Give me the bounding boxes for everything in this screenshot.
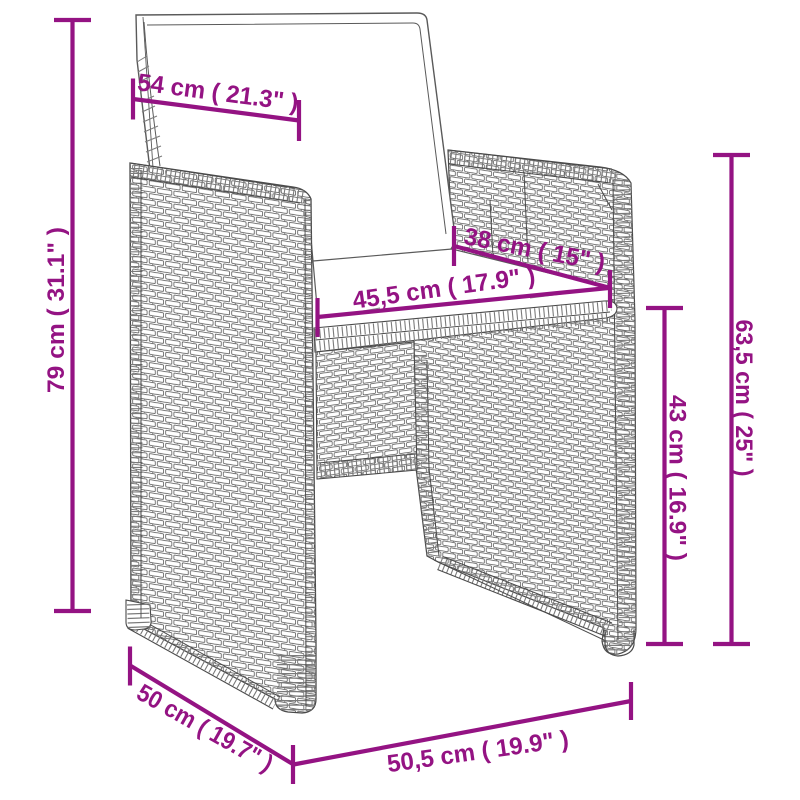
svg-text:43 cm ( 16.9" ): 43 cm ( 16.9" ) xyxy=(664,395,691,561)
svg-text:79 cm ( 31.1" ): 79 cm ( 31.1" ) xyxy=(43,227,70,393)
svg-text:63,5 cm ( 25" ): 63,5 cm ( 25" ) xyxy=(730,320,757,477)
